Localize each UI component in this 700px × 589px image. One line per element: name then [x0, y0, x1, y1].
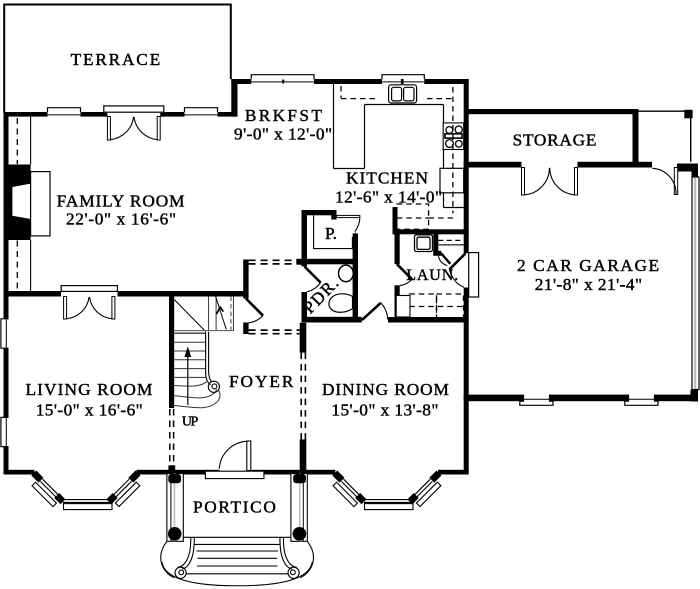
svg-text:15'-0" x 13'-8": 15'-0" x 13'-8"	[331, 401, 438, 420]
svg-text:LIVING ROOM: LIVING ROOM	[26, 380, 153, 399]
svg-text:DINING ROOM: DINING ROOM	[322, 380, 449, 399]
svg-text:21'-8" x 21'-4": 21'-8" x 21'-4"	[535, 275, 642, 294]
svg-text:KITCHEN: KITCHEN	[346, 168, 429, 187]
svg-text:TERRACE: TERRACE	[71, 50, 161, 69]
svg-text:PORTICO: PORTICO	[193, 498, 277, 517]
svg-text:22'-0" x 16'-6": 22'-0" x 16'-6"	[66, 210, 176, 229]
svg-text:STORAGE: STORAGE	[513, 130, 598, 149]
svg-text:LAUN.: LAUN.	[406, 267, 458, 284]
svg-text:P.: P.	[325, 224, 337, 243]
svg-text:12'-6" x 14'-0": 12'-6" x 14'-0"	[335, 188, 442, 207]
svg-text:9'-0" x 12'-0": 9'-0" x 12'-0"	[234, 125, 332, 144]
svg-text:UP: UP	[182, 415, 199, 430]
svg-text:FAMILY ROOM: FAMILY ROOM	[57, 191, 185, 210]
svg-text:15'-0" x 16'-6": 15'-0" x 16'-6"	[36, 400, 143, 419]
svg-text:2 CAR GARAGE: 2 CAR GARAGE	[517, 256, 660, 275]
